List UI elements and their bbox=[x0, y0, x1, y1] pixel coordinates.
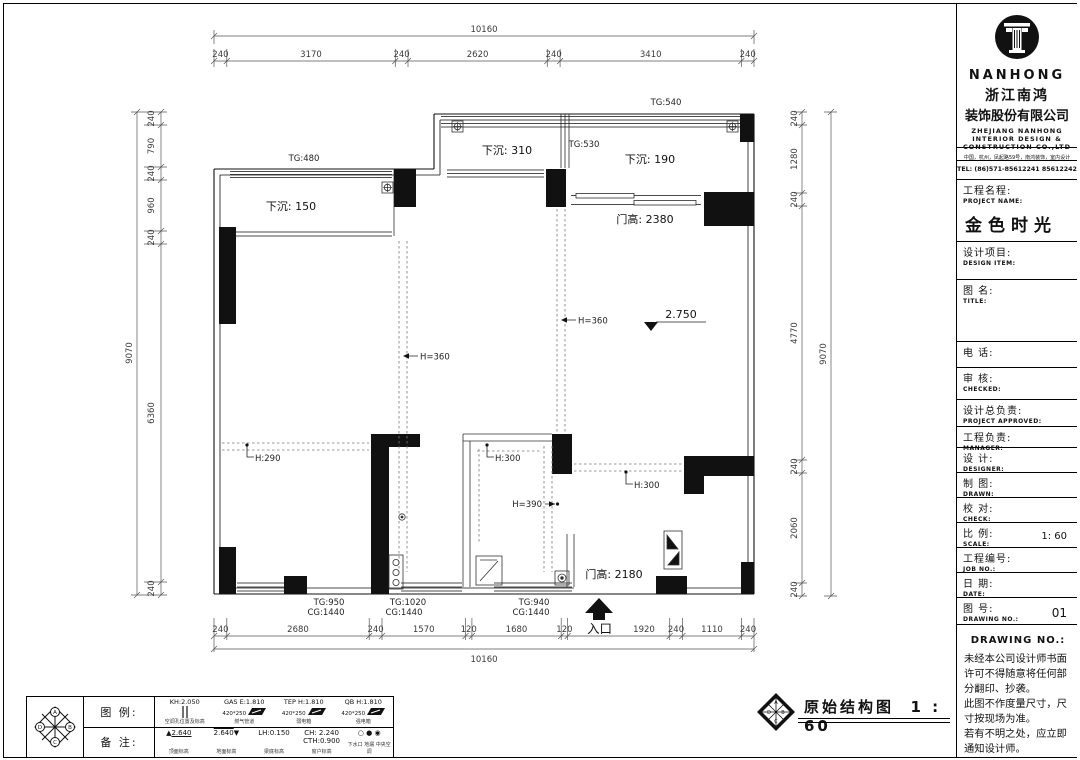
gas-meter-icon bbox=[248, 706, 266, 715]
copyright-notice: DRAWING NO.: 未经本公司设计师书面 许可不得随意将任何部 分翻印、抄… bbox=[957, 625, 1077, 757]
flue-duct bbox=[664, 531, 682, 569]
dim: 240 bbox=[790, 581, 800, 597]
legend-item-gas: GAS E:1.810 420*250 燃气管道 bbox=[215, 697, 275, 727]
dim: 3170 bbox=[300, 50, 322, 60]
dim: 240 bbox=[212, 625, 228, 635]
tag-tg540: TG:540 bbox=[650, 98, 682, 108]
label-h360: H=360 bbox=[578, 317, 608, 327]
field-label-en: PROJECT APPROVED: bbox=[963, 418, 1077, 425]
dim: 240 bbox=[212, 50, 228, 60]
legend-value: KH:2.050 bbox=[170, 698, 200, 706]
dim: 4770 bbox=[790, 322, 800, 344]
dim: 2680 bbox=[287, 625, 309, 635]
dim: 240 bbox=[740, 625, 756, 635]
dim-bottom-total: 10160 bbox=[470, 655, 497, 665]
pipe-stack bbox=[389, 555, 403, 589]
dim: 1920 bbox=[633, 625, 655, 635]
legend-row-labels: 图 例: 备 注: bbox=[84, 697, 155, 757]
note-caption: 窗户标高 bbox=[298, 748, 346, 755]
field-label-cn: 设 计: bbox=[963, 450, 1077, 465]
legend-value: GAS E:1.810 bbox=[224, 698, 265, 706]
scale-value: 1: 60 bbox=[1041, 531, 1067, 542]
drawing-title-stamp: ABCD 原始结构图 1 : 60 bbox=[756, 690, 954, 742]
legend-item-tel-box: TEP H:1.810 420*250 弱电箱 bbox=[274, 697, 334, 727]
legend-size: 420*250 bbox=[282, 711, 306, 717]
entry-arrow bbox=[585, 598, 613, 620]
legend-caption: 弱电箱 bbox=[274, 718, 334, 725]
ac-hole-symbol bbox=[727, 121, 738, 132]
notice-line: 此图不作度量尺寸，尺 bbox=[964, 697, 1072, 712]
legend-label: 图 例: bbox=[84, 697, 154, 728]
company-name-cn2: 装饰股份有限公司 bbox=[957, 105, 1077, 124]
stamp-underline bbox=[798, 722, 950, 723]
company-header: NANHONG 浙江南鸿 装饰股份有限公司 ZHEJIANG NANHONG I… bbox=[957, 4, 1077, 148]
field-designer: 设 计: DESIGNER: bbox=[957, 448, 1077, 473]
notice-title: DRAWING NO.: bbox=[964, 635, 1072, 646]
ac-hole-symbol bbox=[382, 182, 393, 193]
field-label-en: DATE: bbox=[963, 591, 1077, 598]
field-label-cn: 工程编号: bbox=[963, 550, 1077, 565]
note-item-ceiling-level: ▲2.640 顶面标高 bbox=[155, 728, 203, 758]
field-label-en: DESIGNER: bbox=[963, 466, 1077, 473]
field-label-cn: 设计项目: bbox=[963, 244, 1077, 259]
label-h390: H=390 bbox=[512, 500, 542, 510]
note-caption: 地面标高 bbox=[203, 748, 251, 755]
floor-plan: 10160 240 3170 240 2620 240 3410 240 240… bbox=[4, 4, 956, 757]
label-h300: H:300 bbox=[634, 481, 659, 491]
weak-current-box-icon bbox=[308, 706, 326, 715]
notice-line: 若有不明之处，应立即 bbox=[964, 727, 1072, 742]
title-block: NANHONG 浙江南鸿 装饰股份有限公司 ZHEJIANG NANHONG I… bbox=[956, 4, 1077, 757]
field-checked: 审 核: CHECKED: bbox=[957, 368, 1077, 400]
dim: 1280 bbox=[790, 148, 800, 170]
tag-w2-cg: CG:1440 bbox=[385, 608, 422, 618]
note-item-drain-symbols: ○ ● ◉ 下水口 地漏 中央空调 bbox=[345, 728, 393, 758]
field-label-cn: 日 期: bbox=[963, 575, 1077, 590]
ac-hole-icon bbox=[180, 706, 190, 718]
columns bbox=[219, 114, 754, 594]
field-title: 图 名: TITLE: bbox=[957, 280, 1077, 342]
drawing-no-value: 01 bbox=[1052, 606, 1067, 620]
note-caption: 顶面标高 bbox=[155, 748, 203, 755]
drawing-title: 原始结构图 bbox=[804, 698, 894, 716]
field-manager: 工程负责: MANAGER: bbox=[957, 427, 1077, 448]
label-sunken-190: 下沉: 190 bbox=[625, 153, 675, 166]
field-scale: 比 例: SCALE: 1: 60 bbox=[957, 523, 1077, 548]
logo-wordmark: NANHONG bbox=[957, 68, 1077, 83]
dim: 240 bbox=[147, 580, 157, 596]
windows bbox=[220, 114, 748, 591]
dim: 2060 bbox=[790, 517, 800, 539]
dim: 240 bbox=[546, 50, 562, 60]
legend-caption: 燃气管道 bbox=[215, 718, 275, 725]
tag-w1-cg: CG:1440 bbox=[307, 608, 344, 618]
field-phone: 电 话: bbox=[957, 342, 1077, 368]
orientation-symbol: ABCD bbox=[27, 697, 84, 757]
dim: 3410 bbox=[640, 50, 662, 60]
note-value: 2.640 bbox=[171, 729, 191, 737]
notes-items-row: ▲2.640 顶面标高 2.640▼ 地面标高 LH:0.150 梁底标高 CH… bbox=[155, 728, 393, 758]
tag-tg480: TG:480 bbox=[288, 154, 320, 164]
note-caption: 下水口 地漏 中央空调 bbox=[345, 741, 393, 755]
field-label-en: DESIGN ITEM: bbox=[963, 260, 1077, 267]
drain-symbols-icons: ○ ● ◉ bbox=[358, 729, 381, 737]
label-door-height-2180: 门高: 2180 bbox=[585, 567, 642, 581]
dim: 240 bbox=[147, 110, 157, 126]
label-h360: H=360 bbox=[420, 353, 450, 363]
field-project-name: 工程名程: PROJECT NAME: 金色时光 bbox=[957, 180, 1077, 242]
interior-walls bbox=[394, 169, 574, 587]
note-value: LH:0.150 bbox=[258, 729, 290, 737]
label-h300: H:300 bbox=[495, 454, 520, 464]
beam-dashed-lines bbox=[222, 209, 682, 572]
field-label-cn: 电 话: bbox=[963, 344, 1077, 359]
label-sunken-150: 下沉: 150 bbox=[266, 200, 316, 213]
company-address: 中国，杭州，凤起路59号，南鸿装饰，室内设计 bbox=[957, 148, 1077, 161]
project-name-value: 金色时光 bbox=[965, 211, 1077, 236]
notes-label: 备 注: bbox=[84, 728, 154, 758]
company-name-cn: 浙江南鸿 bbox=[957, 85, 1077, 105]
drawing-sheet: 10160 240 3170 240 2620 240 3410 240 240… bbox=[3, 3, 1077, 758]
dim-right-total: 9070 bbox=[819, 343, 829, 365]
dim: 240 bbox=[367, 625, 383, 635]
triangle-down-icon: ▼ bbox=[234, 729, 239, 737]
dim: 120 bbox=[461, 625, 477, 635]
dim: 240 bbox=[147, 229, 157, 245]
tag-w3-cg: CG:1440 bbox=[512, 608, 549, 618]
note-value2: CTH:0.900 bbox=[303, 737, 340, 745]
legend-table: ABCD 图 例: 备 注: KH:2.050 空调孔位置及标高 GAS E:1… bbox=[26, 696, 394, 758]
field-job-no: 工程编号: JOB NO.: bbox=[957, 548, 1077, 573]
dim: 240 bbox=[393, 50, 409, 60]
field-drawing-no: 图 号: DRAWING NO.: 01 bbox=[957, 598, 1077, 625]
notice-line: 寸按现场为准。 bbox=[964, 712, 1072, 727]
svg-text:A: A bbox=[774, 700, 778, 706]
svg-text:C: C bbox=[774, 719, 778, 725]
dim: 240 bbox=[147, 165, 157, 181]
field-label-en: SCALE: bbox=[963, 541, 1077, 548]
label-entry: 入口 bbox=[587, 621, 612, 636]
leaders bbox=[245, 317, 706, 507]
dim: 120 bbox=[556, 625, 572, 635]
legend-size: 420*250 bbox=[341, 711, 365, 717]
dim: 960 bbox=[147, 197, 157, 213]
notice-line: 许可不得随意将任何部 bbox=[964, 667, 1072, 682]
note-caption: 梁底标高 bbox=[250, 748, 298, 755]
notice-line: 通知设计师。 bbox=[964, 742, 1072, 757]
note-item-window-level: CH: 2.240 CTH:0.900 窗户标高 bbox=[298, 728, 346, 758]
shower-tray bbox=[476, 556, 502, 585]
dim: 6360 bbox=[147, 402, 157, 424]
field-design-item: 设计项目: DESIGN ITEM: bbox=[957, 242, 1077, 280]
dim: 1680 bbox=[506, 625, 528, 635]
legend-caption: 空调孔位置及标高 bbox=[155, 718, 215, 725]
dim-left-total: 9070 bbox=[125, 342, 135, 364]
field-date: 日 期: DATE: bbox=[957, 573, 1077, 598]
field-label-en: CHECK: bbox=[963, 516, 1077, 523]
svg-text:A: A bbox=[53, 710, 57, 716]
field-label-cn: 设计总负责: bbox=[963, 402, 1077, 417]
dim: 240 bbox=[790, 458, 800, 474]
compass-icon: ABCD bbox=[32, 704, 78, 750]
dim: 2620 bbox=[467, 50, 489, 60]
dim: 240 bbox=[790, 191, 800, 207]
legend-value: TEP H:1.810 bbox=[284, 698, 324, 706]
stamp-diamond-icon: ABCD bbox=[756, 692, 796, 732]
field-label-en: DRAWN: bbox=[963, 491, 1077, 498]
legend-size: 420*250 bbox=[222, 711, 246, 717]
floor-drain bbox=[399, 514, 405, 520]
field-label-cn: 工程名程: bbox=[963, 182, 1077, 197]
dim: 240 bbox=[668, 625, 684, 635]
note-item-beam-level: LH:0.150 梁底标高 bbox=[250, 728, 298, 758]
ac-hole-symbol bbox=[452, 121, 463, 132]
svg-text:B: B bbox=[781, 710, 785, 716]
plan-labels: TG:540 TG:480 TG:530 下沉: 310 下沉: 190 下沉:… bbox=[255, 98, 697, 636]
field-label-cn: 校 对: bbox=[963, 500, 1077, 515]
note-value: 2.640 bbox=[214, 729, 234, 737]
exterior-walls bbox=[214, 114, 754, 594]
legend-caption: 强电箱 bbox=[334, 718, 394, 725]
label-sunken-310: 下沉: 310 bbox=[482, 144, 532, 157]
field-label-en: CHECKED: bbox=[963, 386, 1077, 393]
svg-text:C: C bbox=[53, 740, 57, 746]
nanhong-logo-icon bbox=[994, 14, 1040, 60]
field-drawn: 制 图: DRAWN: bbox=[957, 473, 1077, 498]
legend-content: KH:2.050 空调孔位置及标高 GAS E:1.810 420*250 燃气… bbox=[155, 697, 393, 757]
note-value: CH: 2.240 bbox=[304, 729, 339, 737]
tag-w1-tg: TG:950 bbox=[313, 598, 345, 608]
note-item-floor-level: 2.640▼ 地面标高 bbox=[203, 728, 251, 758]
power-box-icon bbox=[367, 706, 385, 715]
label-level-2750: 2.750 bbox=[665, 308, 697, 321]
legend-item-power-box: QB H:1.810 420*250 强电箱 bbox=[334, 697, 394, 727]
field-label-en: JOB NO.: bbox=[963, 566, 1077, 573]
field-check: 校 对: CHECK: bbox=[957, 498, 1077, 523]
label-h290: H:290 bbox=[255, 454, 280, 464]
notice-line: 分翻印、抄袭。 bbox=[964, 682, 1072, 697]
field-project-approved: 设计总负责: PROJECT APPROVED: bbox=[957, 400, 1077, 427]
dim: 1110 bbox=[701, 625, 723, 635]
tag-tg530: TG:530 bbox=[568, 140, 600, 150]
stamp-underline bbox=[798, 718, 950, 719]
legend-items-row: KH:2.050 空调孔位置及标高 GAS E:1.810 420*250 燃气… bbox=[155, 697, 393, 728]
label-door-height-2380: 门高: 2380 bbox=[616, 212, 673, 226]
svg-text:D: D bbox=[38, 725, 42, 731]
field-label-cn: 审 核: bbox=[963, 370, 1077, 385]
legend-item-ac-hole: KH:2.050 空调孔位置及标高 bbox=[155, 697, 215, 727]
dim: 240 bbox=[790, 110, 800, 126]
svg-text:B: B bbox=[68, 725, 72, 731]
dim: 240 bbox=[740, 50, 756, 60]
field-label-cn: 工程负责: bbox=[963, 429, 1077, 444]
field-label-en: PROJECT NAME: bbox=[963, 198, 1077, 205]
dim-top-total: 10160 bbox=[470, 25, 497, 35]
svg-text:D: D bbox=[767, 710, 771, 716]
field-label-en: TITLE: bbox=[963, 298, 1077, 305]
dim: 1570 bbox=[413, 625, 435, 635]
legend-value: QB H:1.810 bbox=[345, 698, 382, 706]
tag-w3-tg: TG:940 bbox=[518, 598, 550, 608]
field-label-cn: 图 名: bbox=[963, 282, 1077, 297]
company-phone: TEL: (86)571-85612241 85612242 bbox=[957, 161, 1077, 180]
dim: 790 bbox=[147, 138, 157, 154]
tag-w2-tg: TG:1020 bbox=[389, 598, 426, 608]
field-label-cn: 制 图: bbox=[963, 475, 1077, 490]
notice-line: 未经本公司设计师书面 bbox=[964, 652, 1072, 667]
